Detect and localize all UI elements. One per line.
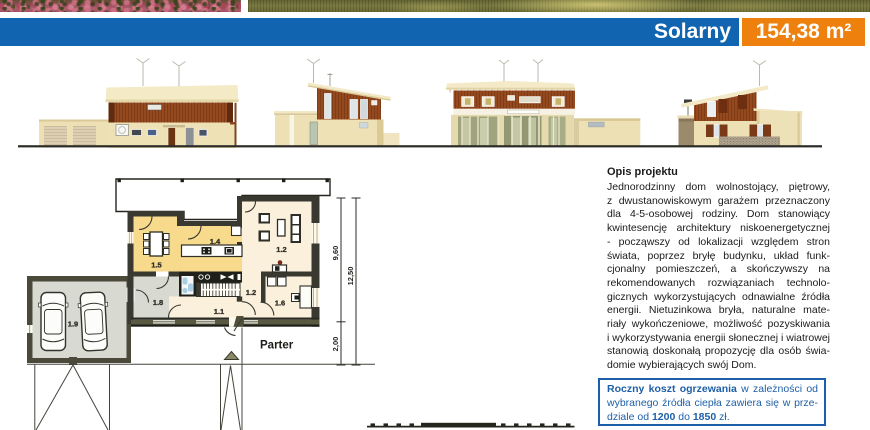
svg-text:12,50: 12,50 [346,267,355,286]
svg-text:1.1: 1.1 [214,307,224,316]
svg-text:1.2: 1.2 [246,288,256,297]
svg-text:Parter: Parter [260,340,294,352]
svg-text:9,60: 9,60 [331,246,340,261]
svg-text:1.6: 1.6 [275,299,285,308]
svg-text:1.2: 1.2 [276,245,286,254]
svg-text:2,00: 2,00 [331,337,340,352]
svg-text:1.5: 1.5 [151,261,161,270]
svg-text:1.8: 1.8 [153,298,163,307]
svg-text:1.9: 1.9 [68,320,78,329]
svg-text:1.4: 1.4 [210,237,221,246]
